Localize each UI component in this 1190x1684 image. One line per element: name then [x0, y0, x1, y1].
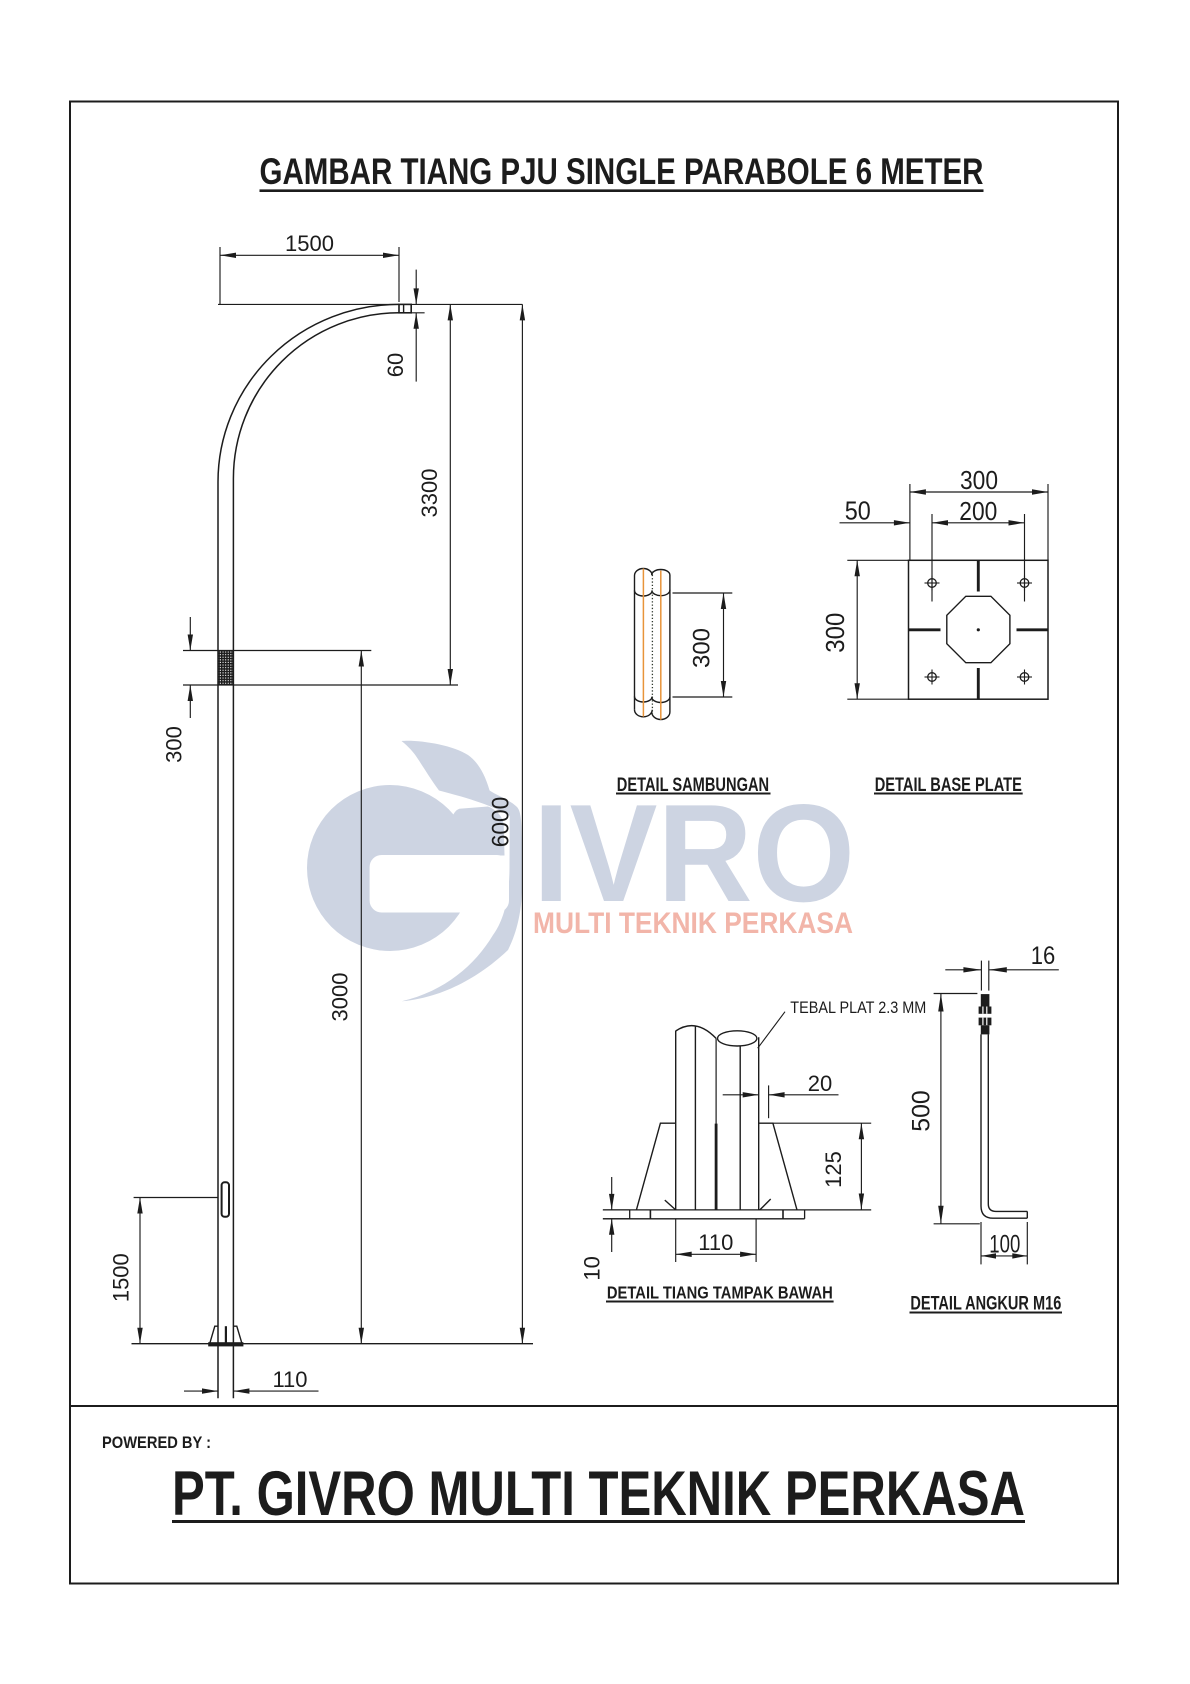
- svg-text:10: 10: [580, 1256, 605, 1280]
- svg-text:1500: 1500: [108, 1253, 133, 1302]
- svg-text:DETAIL TIANG TAMPAK BAWAH: DETAIL TIANG TAMPAK BAWAH: [607, 1283, 833, 1303]
- svg-text:3300: 3300: [417, 469, 442, 518]
- svg-text:POWERED BY :: POWERED BY :: [102, 1434, 211, 1452]
- svg-text:1500: 1500: [285, 231, 334, 256]
- svg-text:GAMBAR TIANG PJU SINGLE PARABO: GAMBAR TIANG PJU SINGLE PARABOLE 6 METER: [260, 151, 984, 192]
- svg-text:300: 300: [162, 726, 187, 763]
- svg-text:300: 300: [820, 613, 850, 653]
- svg-text:300: 300: [688, 628, 715, 668]
- svg-text:DETAIL ANGKUR M16: DETAIL ANGKUR M16: [910, 1293, 1061, 1315]
- svg-text:20: 20: [808, 1071, 832, 1096]
- svg-text:PT. GIVRO MULTI TEKNIK PERKASA: PT. GIVRO MULTI TEKNIK PERKASA: [172, 1459, 1025, 1529]
- svg-text:6000: 6000: [488, 797, 515, 848]
- svg-text:500: 500: [907, 1090, 935, 1132]
- svg-text:16: 16: [1031, 942, 1056, 970]
- svg-text:125: 125: [821, 1151, 846, 1188]
- svg-text:110: 110: [698, 1230, 733, 1255]
- svg-text:TEBAL PLAT 2.3 MM: TEBAL PLAT 2.3 MM: [790, 999, 926, 1017]
- svg-text:MULTI TEKNIK PERKASA: MULTI TEKNIK PERKASA: [533, 907, 853, 940]
- svg-text:100: 100: [989, 1230, 1020, 1258]
- svg-text:60: 60: [383, 353, 408, 377]
- svg-text:110: 110: [272, 1367, 307, 1392]
- svg-text:3000: 3000: [328, 973, 353, 1022]
- svg-text:50: 50: [845, 495, 871, 525]
- svg-text:200: 200: [959, 496, 997, 526]
- svg-text:300: 300: [960, 465, 998, 495]
